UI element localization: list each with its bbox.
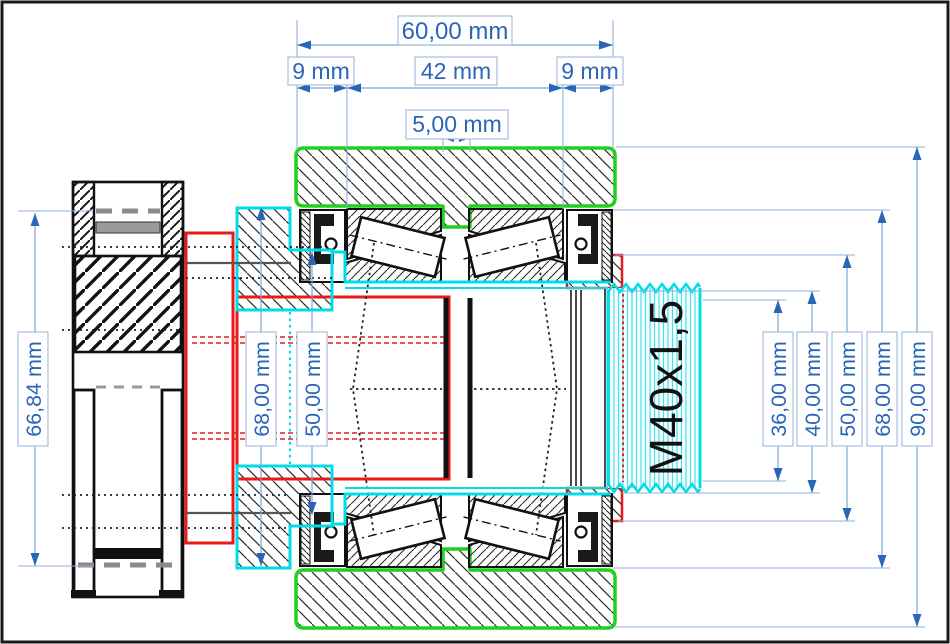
dim-right-section: 9 mm [557, 57, 623, 85]
dim-right-diameter-36: 36,00 mm [763, 332, 793, 446]
dim-left-bore-diameter: 50,00 mm [297, 332, 327, 446]
pulley-flange-top-left [73, 182, 94, 256]
pulley-flange-top-right [162, 182, 183, 256]
dim-right-diameter-40-label: 40,00 mm [801, 341, 825, 437]
dim-pulley-diameter-label: 66,84 mm [22, 341, 46, 437]
dim-left-section-label: 9 mm [292, 58, 350, 84]
dim-center-section: 42 mm [415, 57, 497, 85]
dim-left-bore-diameter-label: 50,00 mm [301, 341, 325, 437]
pulley-section [71, 182, 184, 598]
dim-rib-width-label: 5,00 mm [412, 111, 501, 137]
seal-top-left [300, 210, 345, 282]
seal-bottom-left [300, 494, 345, 566]
dim-right-diameter-90-label: 90,00 mm [906, 341, 930, 437]
drawing-canvas: M40x1,5 [0, 0, 950, 644]
dim-left-section: 9 mm [288, 57, 354, 85]
dim-overall-width: 60,00 mm [398, 16, 512, 45]
dim-left-outer-diameter: 68,00 mm [246, 332, 276, 446]
seal-top-right [567, 210, 612, 282]
dim-right-section-label: 9 mm [561, 58, 619, 84]
thread-designation-label: M40x1,5 [640, 300, 692, 476]
dim-left-outer-diameter-label: 68,00 mm [250, 341, 274, 437]
dim-right-diameter-50-label: 50,00 mm [836, 341, 860, 437]
dim-right-diameter-40: 40,00 mm [797, 332, 827, 446]
threaded-shaft-end: M40x1,5 [608, 284, 700, 492]
dim-right-diameter-90: 90,00 mm [902, 332, 932, 446]
seal-bottom-right [567, 494, 612, 566]
dim-overall-width-label: 60,00 mm [402, 18, 509, 45]
belt-section [96, 222, 160, 233]
pulley-rim-bottom [94, 548, 162, 559]
dim-right-diameter-36-label: 36,00 mm [767, 341, 791, 437]
dim-right-diameter-68: 68,00 mm [867, 332, 897, 446]
dim-right-diameter-50: 50,00 mm [832, 332, 862, 446]
dim-right-diameter-68-label: 68,00 mm [871, 341, 895, 437]
dim-rib-width: 5,00 mm [406, 110, 508, 139]
dim-center-section-label: 42 mm [421, 58, 491, 84]
pulley-hub-section [75, 256, 181, 352]
dim-pulley-diameter: 66,84 mm [18, 332, 48, 446]
technical-drawing: M40x1,5 [0, 0, 950, 644]
